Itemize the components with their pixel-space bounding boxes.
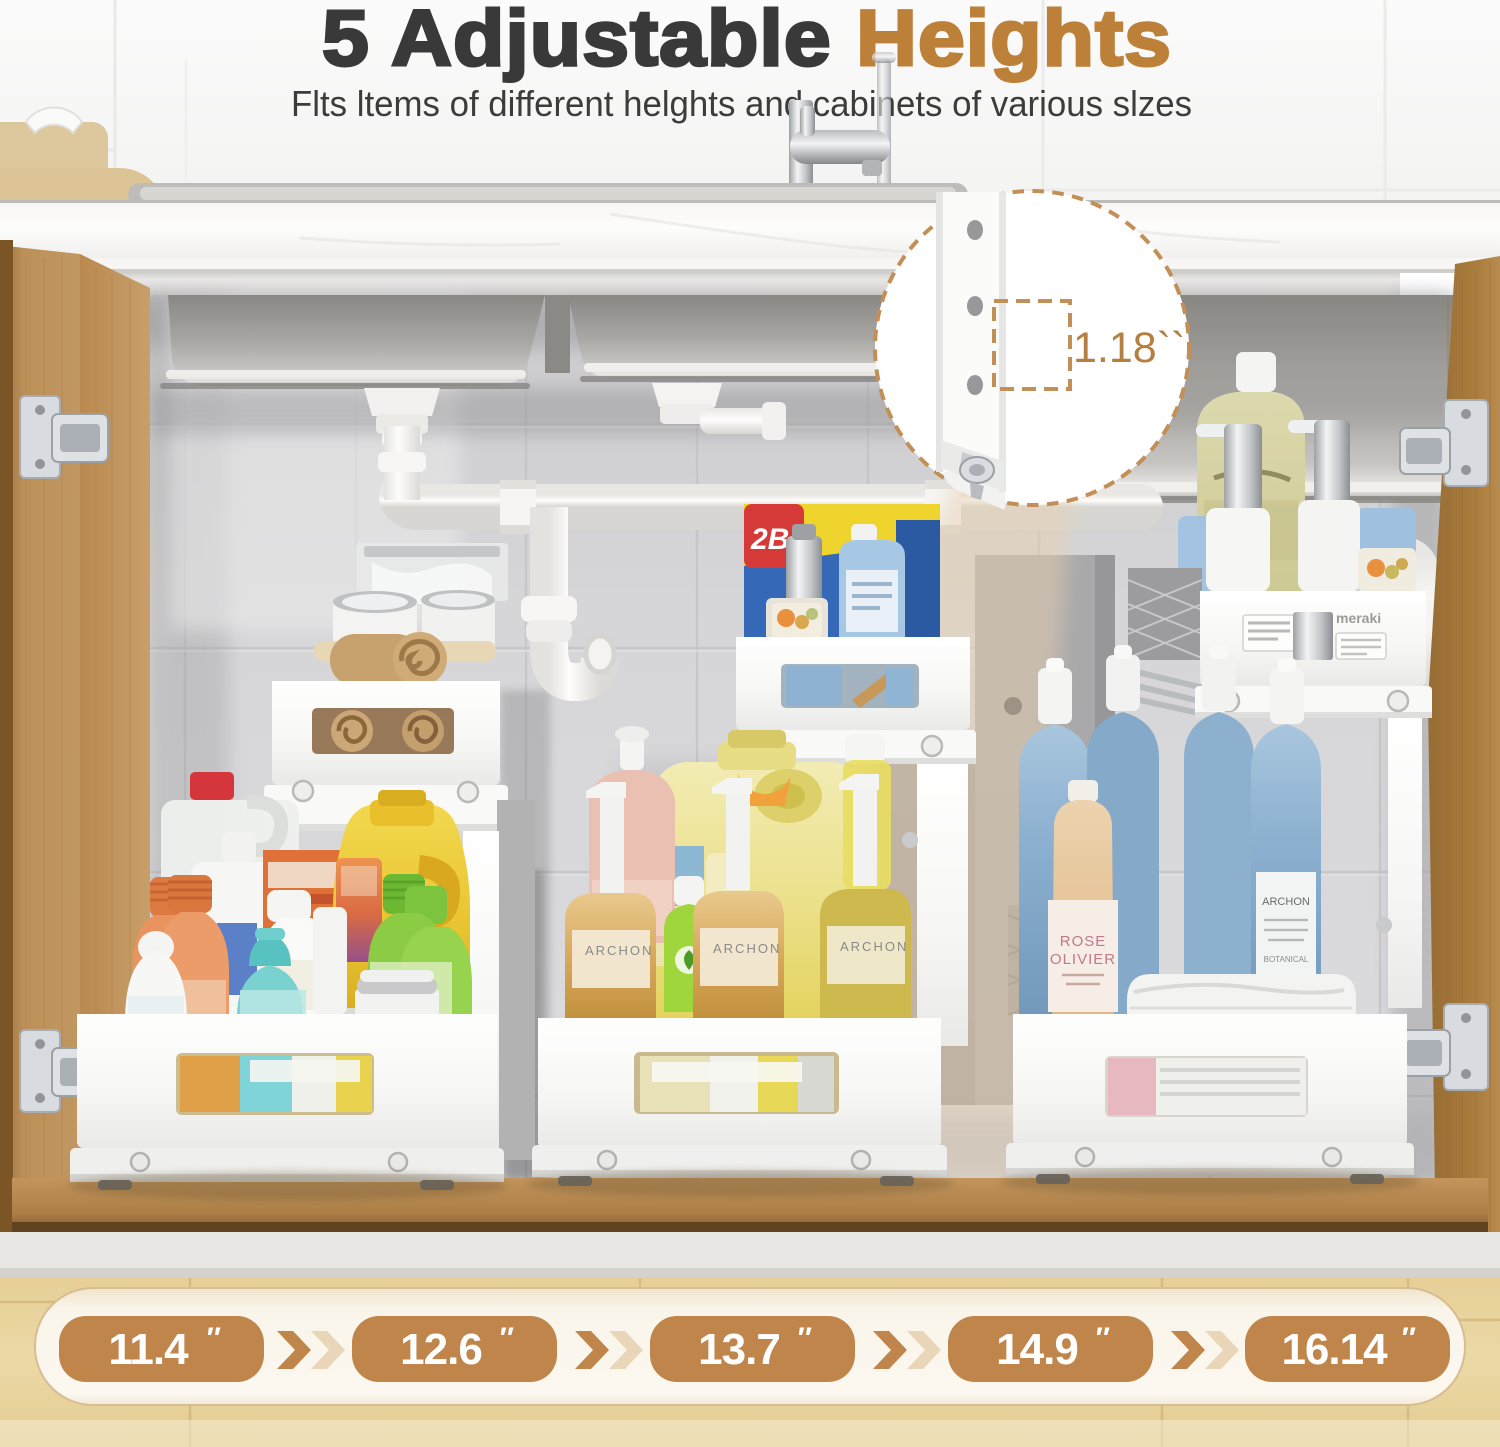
svg-text:13.7: 13.7 — [698, 1325, 780, 1374]
svg-text:′′: ′′ — [796, 1322, 812, 1355]
svg-text:meraki: meraki — [1336, 610, 1381, 626]
svg-text:Flts ltems of different helght: Flts ltems of different helghts and cabi… — [291, 83, 1192, 124]
svg-text:ARCHON: ARCHON — [840, 939, 908, 954]
svg-text:′′: ′′ — [205, 1322, 221, 1355]
svg-text:ARCHON: ARCHON — [713, 941, 781, 956]
svg-text:1.18``: 1.18`` — [1073, 324, 1185, 372]
svg-text:12.6: 12.6 — [400, 1325, 482, 1374]
svg-text:OLIVIER: OLIVIER — [1050, 951, 1116, 968]
svg-text:ROSE: ROSE — [1060, 933, 1107, 950]
svg-text:′′: ′′ — [1400, 1322, 1416, 1355]
svg-text:ARCHON: ARCHON — [1262, 896, 1310, 908]
svg-text:16.14: 16.14 — [1281, 1325, 1388, 1374]
svg-text:BOTANICAL: BOTANICAL — [1264, 955, 1309, 964]
svg-text:′′: ′′ — [1094, 1322, 1110, 1355]
svg-text:14.9: 14.9 — [996, 1325, 1078, 1374]
svg-text:ARCHON: ARCHON — [585, 943, 653, 958]
svg-text:′′: ′′ — [498, 1322, 514, 1355]
svg-text:5 Adjustable Heights: 5 Adjustable Heights — [322, 0, 1172, 82]
svg-text:11.4: 11.4 — [108, 1325, 189, 1374]
